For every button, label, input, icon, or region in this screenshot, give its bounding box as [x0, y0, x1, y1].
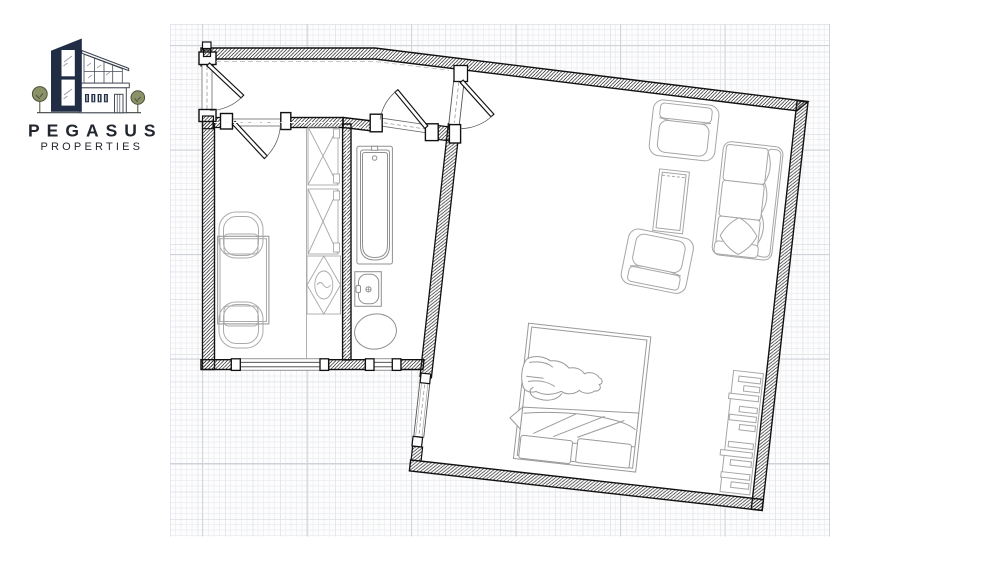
svg-text:PROPERTIES: PROPERTIES [41, 141, 144, 153]
svg-text:PEGASUS: PEGASUS [28, 121, 163, 141]
